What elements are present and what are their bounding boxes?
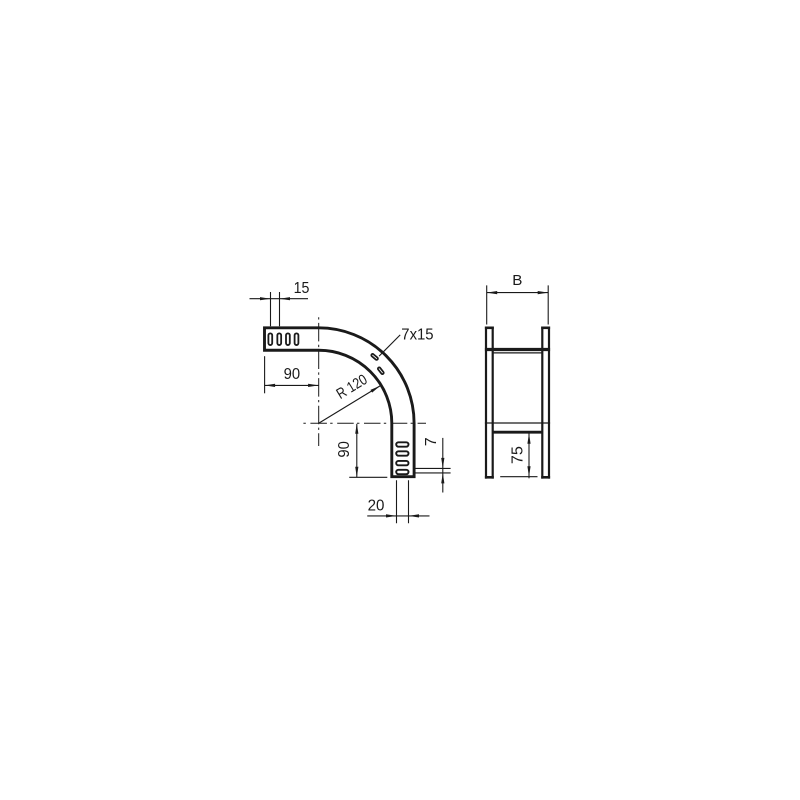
svg-text:B: B [512, 272, 522, 289]
svg-text:15: 15 [294, 280, 310, 297]
svg-text:20: 20 [368, 497, 385, 514]
svg-text:90: 90 [336, 441, 353, 458]
svg-text:90: 90 [284, 366, 301, 383]
svg-text:7x15: 7x15 [401, 326, 433, 343]
svg-text:75: 75 [510, 446, 527, 464]
svg-text:7: 7 [423, 437, 440, 446]
